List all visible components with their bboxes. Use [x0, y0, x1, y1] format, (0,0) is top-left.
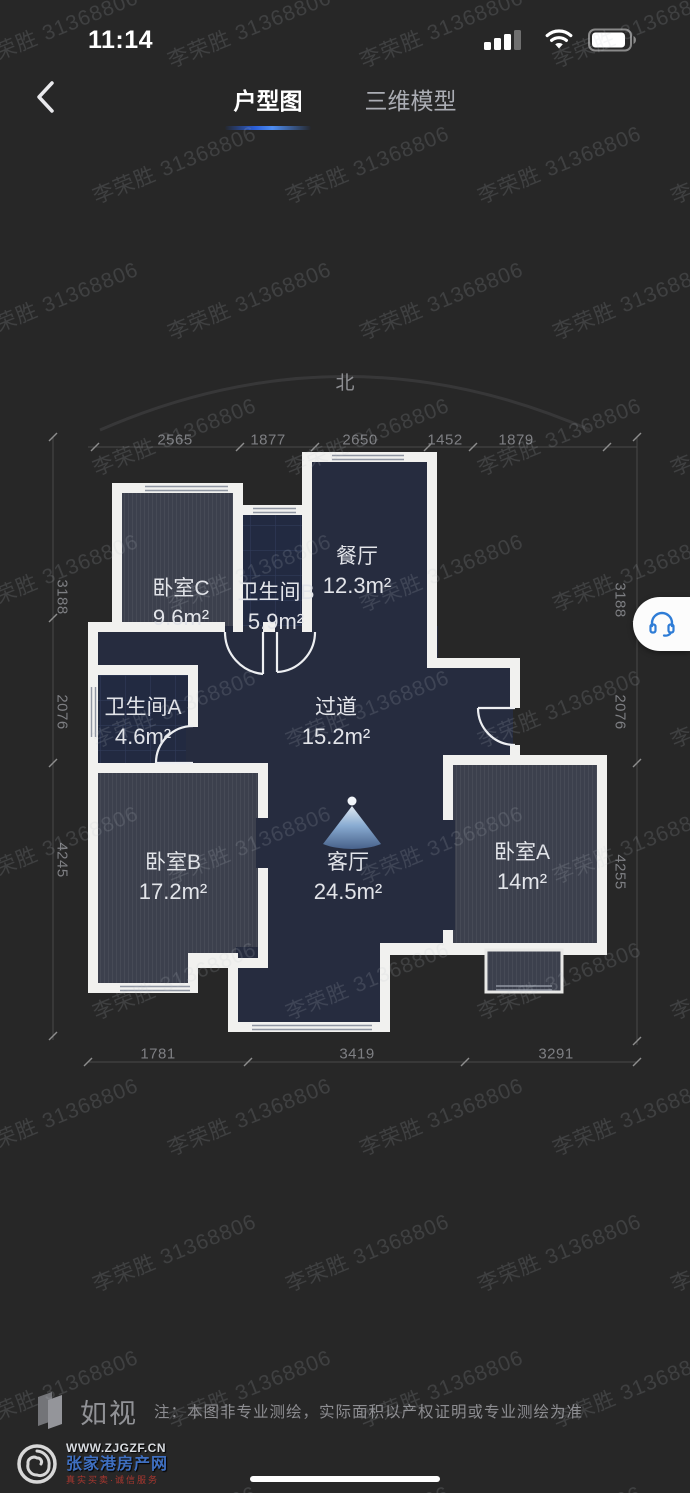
cellular-signal-icon — [484, 28, 530, 52]
tab-floorplan[interactable]: 户型图 — [234, 82, 303, 130]
site-url: WWW.ZJGZF.CN — [66, 1442, 168, 1456]
footer-bar: 如视 注：本图非专业测绘，实际面积以产权证明或专业测绘为准 — [0, 1384, 690, 1438]
room-label-bathroomA: 卫生间A 4.6m² — [104, 693, 181, 751]
customer-service-button[interactable] — [633, 597, 690, 651]
dim-label: 3291 — [538, 1046, 573, 1063]
room-label-living: 客厅 24.5m² — [314, 848, 382, 906]
home-indicator[interactable] — [250, 1476, 440, 1482]
disclaimer-text: 注：本图非专业测绘，实际面积以产权证明或专业测绘为准 — [154, 1400, 583, 1422]
room-label-hallway: 过道 15.2m² — [302, 693, 370, 751]
dim-label: 3188 — [612, 582, 629, 617]
dim-label: 2076 — [54, 694, 71, 729]
app-screen: 11:14 户型图 — [0, 0, 690, 1493]
dim-label: 3188 — [54, 579, 71, 614]
rushi-logo-icon — [36, 1391, 70, 1431]
dim-label: 1879 — [498, 432, 533, 449]
site-slogan: 真实买卖·诚信服务 — [66, 1475, 168, 1485]
room-label-bathroomB: 卫生间B 5.9m² — [237, 578, 314, 636]
dim-label: 2650 — [342, 432, 377, 449]
site-name: 张家港房产网 — [66, 1456, 168, 1474]
dim-label: 1781 — [140, 1046, 175, 1063]
tab-floorplan-label: 户型图 — [234, 88, 303, 114]
dim-label: 4245 — [54, 842, 71, 877]
battery-icon — [588, 28, 638, 52]
room-label-bedroomC: 卧室C 9.6m² — [152, 574, 209, 632]
dim-label: 2076 — [612, 694, 629, 729]
active-tab-underline — [225, 126, 311, 130]
dim-label: 2565 — [157, 432, 192, 449]
rushi-logo: 如视 — [36, 1391, 138, 1431]
rushi-logo-text: 如视 — [80, 1392, 138, 1431]
site-watermark: WWW.ZJGZF.CN 张家港房产网 真实买卖·诚信服务 — [16, 1442, 168, 1486]
site-logo-icon — [16, 1443, 58, 1485]
wifi-icon — [543, 28, 575, 52]
nav-bar: 户型图 三维模型 — [0, 74, 690, 134]
headset-icon — [648, 610, 676, 638]
status-bar: 11:14 — [0, 0, 690, 62]
dim-label: 3419 — [339, 1046, 374, 1063]
clock: 11:14 — [88, 26, 153, 55]
room-label-bedroomA: 卧室A 14m² — [494, 838, 550, 896]
tab-bar: 户型图 三维模型 — [0, 82, 690, 130]
dim-label: 4255 — [612, 854, 629, 889]
dim-label: 1877 — [250, 432, 285, 449]
north-indicator: 北 — [335, 368, 354, 395]
room-label-dining: 餐厅 12.3m² — [323, 542, 391, 600]
tab-3d-model[interactable]: 三维模型 — [365, 82, 457, 130]
room-label-bedroomB: 卧室B 17.2m² — [139, 848, 207, 906]
tab-3d-model-label: 三维模型 — [365, 88, 457, 114]
dim-label: 1452 — [427, 432, 462, 449]
